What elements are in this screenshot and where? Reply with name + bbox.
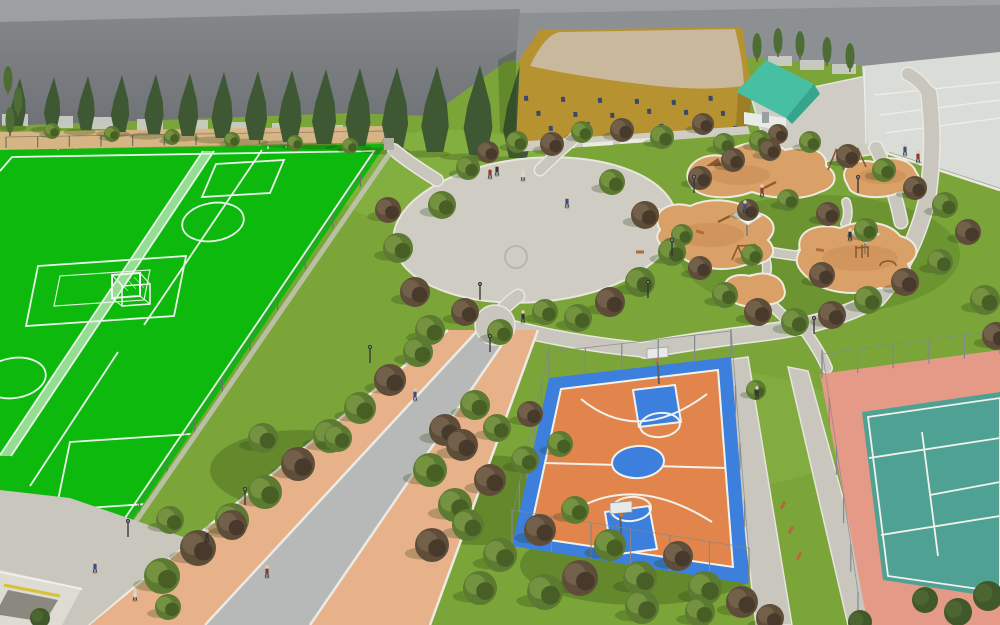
park-render-stage: Aerial 3D rendering of a sports park mas… xyxy=(0,0,1000,625)
gym-window xyxy=(610,113,614,118)
bush xyxy=(944,598,972,625)
gym-window xyxy=(721,111,725,116)
bench xyxy=(636,251,644,254)
gym-window xyxy=(561,97,565,102)
bush xyxy=(912,587,938,613)
field-gate xyxy=(384,138,394,150)
gym-window xyxy=(709,96,713,101)
gym-window xyxy=(684,110,688,115)
gym-window xyxy=(672,100,676,105)
gym-window xyxy=(598,98,602,103)
gym-window xyxy=(647,109,651,114)
gym-window xyxy=(536,111,540,116)
gym-window xyxy=(635,99,639,104)
gym-window xyxy=(524,96,528,101)
park-render: Aerial 3D rendering of a sports park mas… xyxy=(0,0,1000,625)
gym-window xyxy=(549,126,553,131)
gym-window xyxy=(573,112,577,117)
